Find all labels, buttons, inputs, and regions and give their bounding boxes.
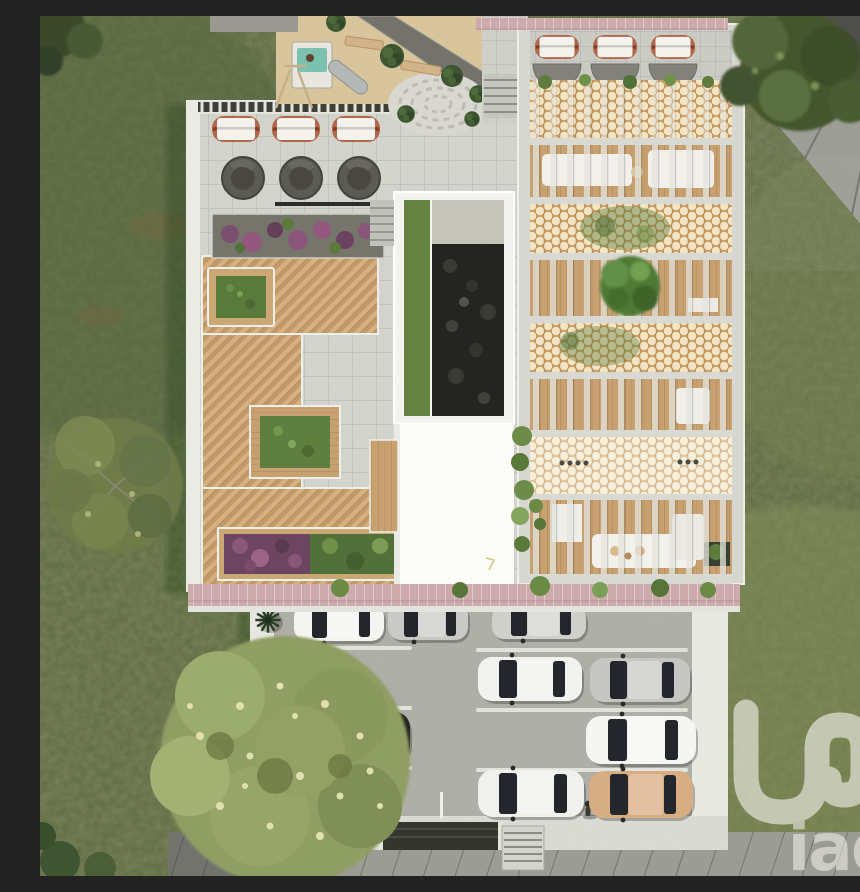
car-silver-r2-right bbox=[590, 654, 692, 707]
top-path bbox=[210, 16, 298, 32]
canopy-loungers-right bbox=[535, 35, 695, 59]
courtyard-void bbox=[394, 192, 514, 424]
pergola-building bbox=[518, 24, 744, 584]
purple-flower-bed bbox=[212, 214, 384, 258]
rooftop-terrace bbox=[186, 100, 518, 592]
architectural-render: iad bbox=[40, 16, 860, 876]
rock-garden bbox=[432, 244, 504, 416]
pergola-band-3 bbox=[530, 379, 732, 430]
stairs bbox=[502, 826, 544, 870]
spa-pods bbox=[222, 157, 380, 199]
parking-wall-right bbox=[692, 608, 728, 834]
iad-logo-text: iad bbox=[788, 809, 860, 876]
terrace-wall-left bbox=[186, 100, 200, 592]
courtyard-tree bbox=[600, 256, 660, 316]
car-white-r4-right bbox=[478, 766, 586, 822]
stone-circle bbox=[388, 72, 488, 136]
car-white-r3-right bbox=[586, 712, 698, 769]
pergola-band-1 bbox=[530, 145, 732, 197]
pergola-band-4 bbox=[529, 499, 732, 574]
pergola-band-2 bbox=[530, 256, 732, 316]
breeze-block-band-1 bbox=[530, 74, 732, 138]
car-tan-r4-right bbox=[589, 767, 695, 823]
tree-bottom-left bbox=[150, 636, 410, 876]
wood-bench bbox=[370, 440, 398, 532]
grass-planter-mid bbox=[250, 406, 340, 478]
breeze-block-band-2 bbox=[530, 204, 732, 253]
canopy-loungers-left bbox=[212, 116, 380, 142]
steps-to-courtyard bbox=[370, 200, 394, 246]
breeze-block-band-3 bbox=[530, 323, 732, 372]
breeze-block-band-4 bbox=[530, 437, 732, 494]
car-white-r2-right bbox=[478, 653, 584, 706]
grass-planter-small bbox=[208, 268, 274, 326]
core-roof bbox=[394, 424, 514, 588]
